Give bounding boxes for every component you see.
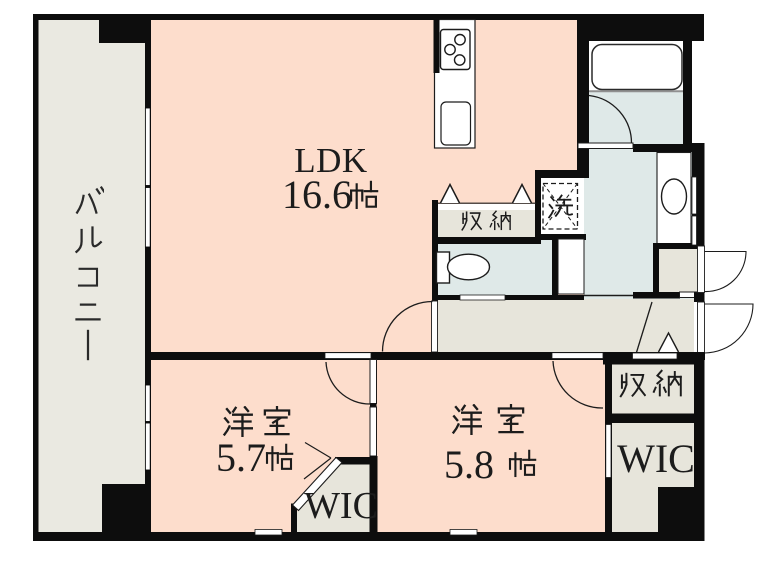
svg-text:WIC: WIC (304, 485, 378, 527)
svg-text:16.6: 16.6 (282, 172, 352, 217)
svg-text:5.8: 5.8 (444, 442, 494, 487)
svg-text:WIC: WIC (617, 436, 695, 481)
svg-text:5.7: 5.7 (216, 435, 266, 480)
